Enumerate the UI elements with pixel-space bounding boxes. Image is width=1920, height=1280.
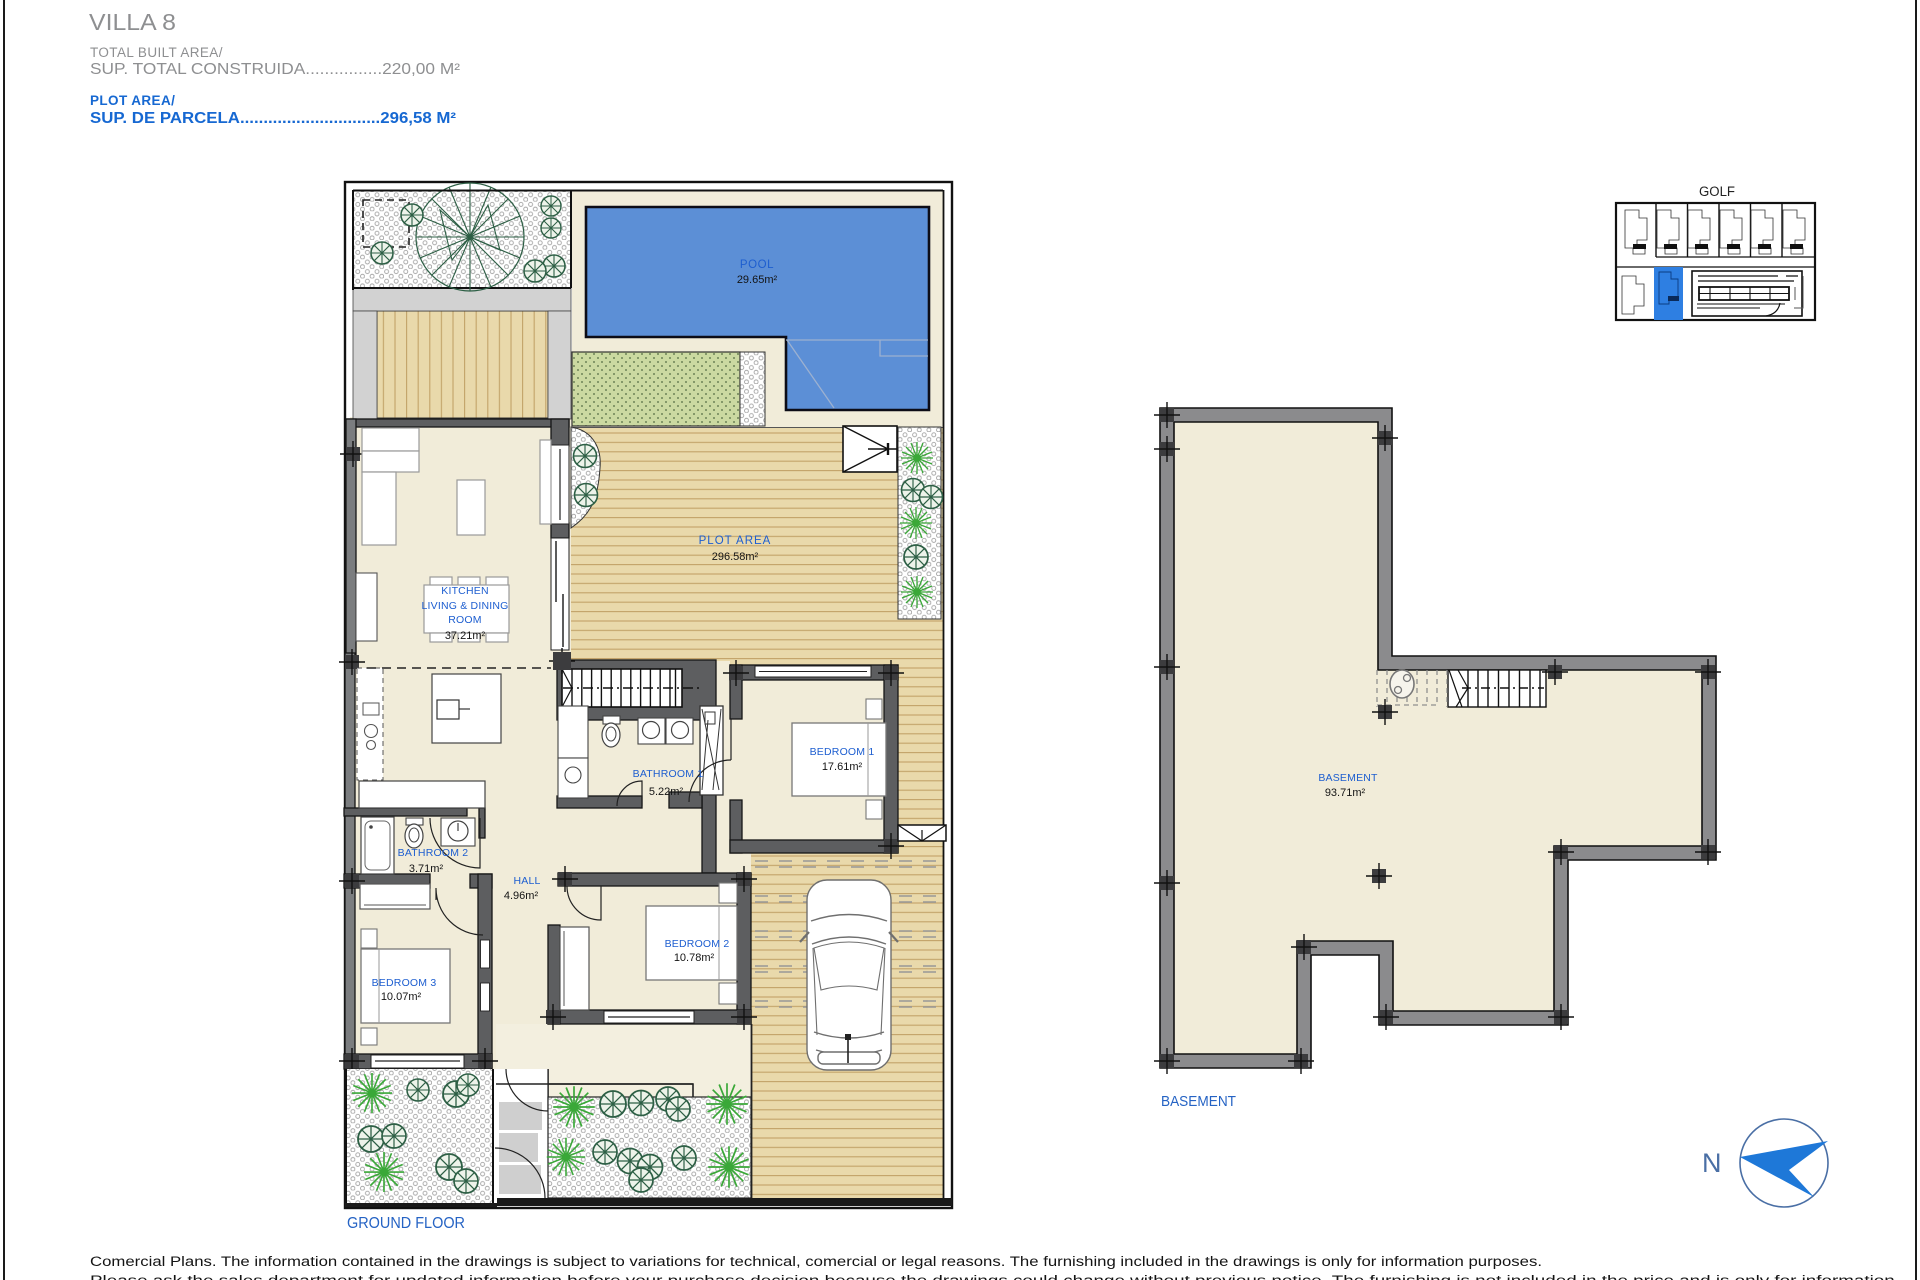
svg-text:GROUND FLOOR: GROUND FLOOR bbox=[347, 1215, 465, 1232]
svg-text:N: N bbox=[1702, 1148, 1722, 1178]
svg-text:29.65m²: 29.65m² bbox=[737, 274, 778, 286]
svg-text:LIVING & DINING: LIVING & DINING bbox=[421, 600, 508, 612]
svg-text:10.78m²: 10.78m² bbox=[674, 952, 715, 964]
svg-text:5.22m²: 5.22m² bbox=[649, 786, 684, 798]
svg-text:POOL: POOL bbox=[740, 259, 774, 271]
svg-text:3.71m²: 3.71m² bbox=[409, 863, 444, 875]
svg-text:4.96m²: 4.96m² bbox=[504, 890, 539, 902]
svg-text:BATHROOM 1: BATHROOM 1 bbox=[633, 768, 704, 780]
svg-text:BATHROOM 2: BATHROOM 2 bbox=[398, 847, 469, 859]
svg-text:37.21m²: 37.21m² bbox=[445, 630, 486, 642]
svg-text:TOTAL BUILT AREA/: TOTAL BUILT AREA/ bbox=[90, 45, 223, 60]
svg-text:SUP. DE PARCELA...............: SUP. DE PARCELA.........................… bbox=[90, 110, 456, 127]
svg-text:10.07m²: 10.07m² bbox=[381, 991, 422, 1003]
svg-text:BASEMENT: BASEMENT bbox=[1318, 772, 1378, 784]
svg-text:VILLA 8: VILLA 8 bbox=[89, 9, 176, 35]
svg-text:Please ask the sales departmen: Please ask the sales department for upda… bbox=[90, 1273, 1900, 1280]
svg-text:BASEMENT: BASEMENT bbox=[1161, 1094, 1236, 1110]
svg-text:HALL: HALL bbox=[513, 875, 540, 887]
svg-text:GOLF: GOLF bbox=[1699, 184, 1735, 199]
svg-text:PLOT AREA: PLOT AREA bbox=[699, 535, 772, 547]
svg-text:PLOT AREA/: PLOT AREA/ bbox=[90, 93, 175, 108]
svg-text:KITCHEN: KITCHEN bbox=[441, 585, 489, 597]
svg-text:Comercial Plans. The informati: Comercial Plans. The information contain… bbox=[90, 1254, 1542, 1269]
svg-text:ROOM: ROOM bbox=[448, 614, 481, 626]
svg-text:BEDROOM 2: BEDROOM 2 bbox=[665, 938, 730, 950]
svg-text:SUP. TOTAL CONSTRUIDA.........: SUP. TOTAL CONSTRUIDA................220… bbox=[90, 61, 460, 78]
svg-text:17.61m²: 17.61m² bbox=[822, 761, 863, 773]
svg-text:296.58m²: 296.58m² bbox=[712, 551, 759, 563]
svg-text:BEDROOM 3: BEDROOM 3 bbox=[372, 977, 437, 989]
svg-text:93.71m²: 93.71m² bbox=[1325, 787, 1366, 799]
svg-text:BEDROOM 1: BEDROOM 1 bbox=[810, 746, 875, 758]
